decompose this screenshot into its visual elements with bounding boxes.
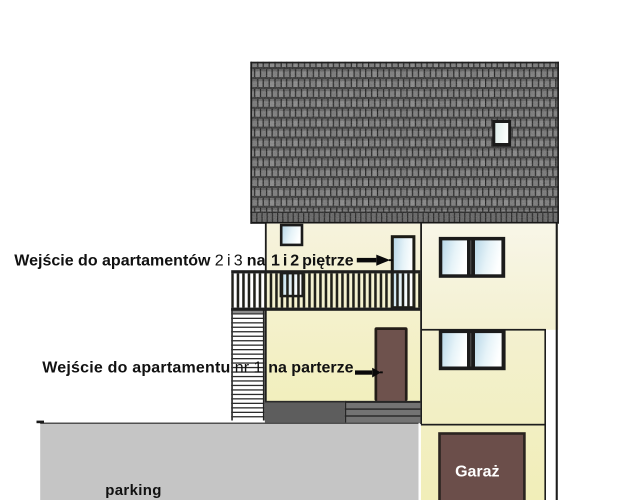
svg-text:Wejście do apartamentu: Wejście do apartamentu <box>42 360 230 377</box>
svg-text:nr 1: nr 1 <box>235 360 263 377</box>
svg-text:Garaż: Garaż <box>455 463 499 480</box>
svg-text:na parterze: na parterze <box>268 360 353 377</box>
svg-text:parking: parking <box>105 482 162 499</box>
svg-text:na: na <box>247 252 266 269</box>
svg-text:2 i 3: 2 i 3 <box>215 252 243 269</box>
svg-text:Wejście do apartamentów: Wejście do apartamentów <box>14 252 211 269</box>
svg-text:1 i 2 piętrze: 1 i 2 piętrze <box>271 252 354 269</box>
